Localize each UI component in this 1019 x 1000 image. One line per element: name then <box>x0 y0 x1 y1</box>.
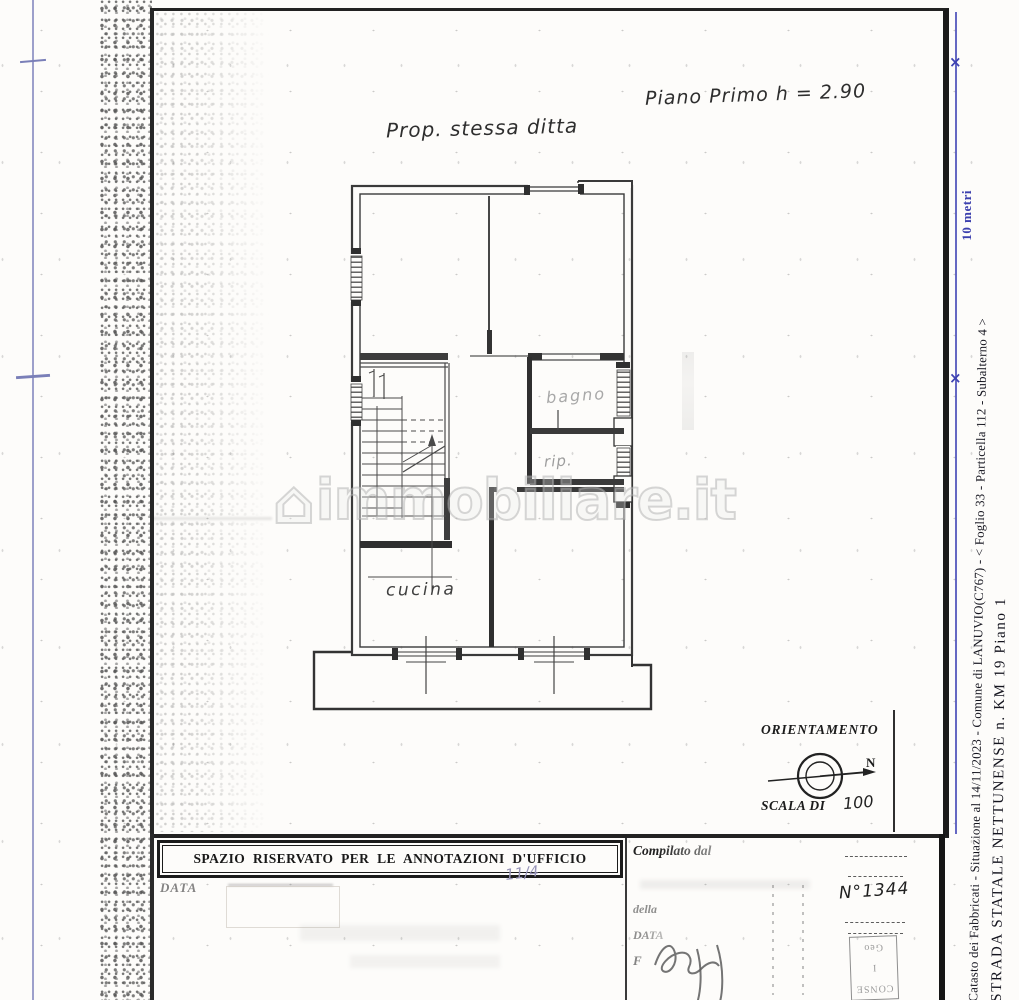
stamp-text-line: CONSE <box>856 982 894 994</box>
left-border-extension <box>150 834 154 1000</box>
orientation-title: ORIENTAMENTO <box>761 722 878 738</box>
top-right-wall-step <box>577 181 633 188</box>
faint-tick-column <box>772 885 774 995</box>
office-annotations-header: SPAZIO RISERVATO PER LE ANNOTAZIONI D'UF… <box>162 845 618 873</box>
right-border-extension <box>939 834 945 1000</box>
faint-text-smudge <box>640 880 810 889</box>
watermark: ⌂immobiliare.it <box>273 468 736 538</box>
office-annotations-header-box: SPAZIO RISERVATO PER LE ANNOTAZIONI D'UF… <box>157 840 623 878</box>
house-icon: ⌂ <box>273 468 314 538</box>
stamp-text-line: I <box>872 962 877 973</box>
top-wall-window <box>524 183 584 196</box>
faint-street-label-smudge <box>682 352 694 430</box>
north-label: N <box>866 755 875 771</box>
right-ruler-tick: × <box>949 369 962 387</box>
floor-plan-drawing <box>300 170 700 730</box>
faint-stamp-box <box>226 886 340 928</box>
ruler-length-label: 10 metri <box>959 190 975 241</box>
orientation-cell-divider <box>893 710 895 832</box>
faint-stamp-smudge <box>350 955 500 968</box>
inverted-stamp-box: Geo I CONSE <box>849 935 899 1000</box>
dashed-line <box>845 922 905 923</box>
stamp-text-line: Geo <box>863 942 883 954</box>
property-note-handwritten: Prop. stessa ditta <box>386 113 579 142</box>
dashed-line <box>848 933 903 934</box>
dashed-line <box>848 876 903 877</box>
right-ruler-tick: × <box>949 53 962 71</box>
room-label-cucina: cucina <box>386 579 457 600</box>
left-scale-ruler-line <box>32 0 34 1000</box>
dashed-line <box>845 856 907 857</box>
scan-edge-noise-band <box>100 0 152 1000</box>
faint-stamp-smudge <box>300 925 500 941</box>
scale-label: SCALA DI <box>761 798 825 814</box>
office-section-divider <box>625 838 627 1000</box>
scanned-cadastral-plan-page: Prop. stessa ditta Piano Primo h = 2.90 <box>0 0 1019 1000</box>
right-scale-ruler-line <box>955 12 957 834</box>
watermark-text: immobiliare.it <box>316 468 736 533</box>
compiled-label: Compilato dal <box>633 843 803 859</box>
balcony-outline <box>314 652 651 709</box>
scale-value-handwritten: 100 <box>842 792 874 814</box>
faint-tick-column <box>802 885 804 995</box>
data-label: DATA <box>160 880 197 896</box>
interior-partitions <box>360 196 624 647</box>
firma-label: F <box>633 953 642 969</box>
